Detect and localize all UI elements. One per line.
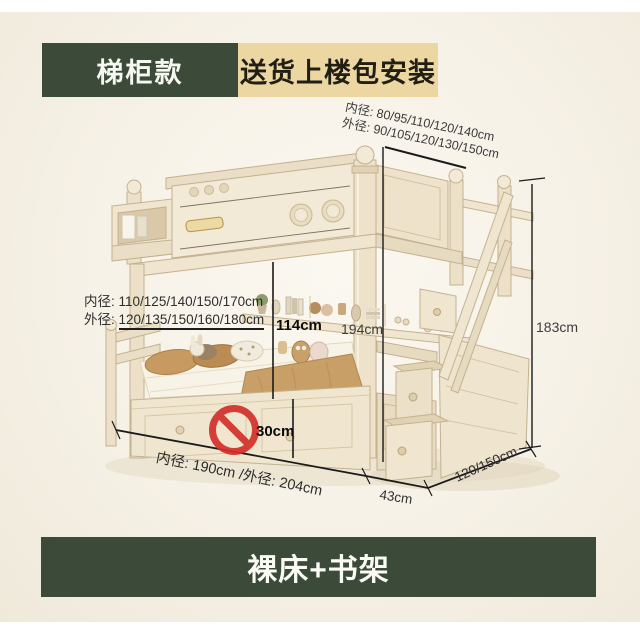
inner-size-label: 内径:: [84, 294, 115, 309]
lower-bed-inner-size: 内径: 110/125/140/150/170cm: [84, 293, 264, 311]
mid-height-dim: 194cm: [341, 320, 383, 338]
total-height-dim: 183cm: [536, 318, 578, 336]
variant-tag: 裸床+书架: [41, 537, 596, 597]
model-tag: 梯柜款: [42, 43, 238, 97]
promo-tag: 送货上楼包安装: [238, 43, 438, 97]
book-caddy: [112, 180, 172, 264]
underbed-height-dim: 30cm: [256, 422, 294, 442]
guardrail-right: [449, 169, 533, 285]
outer-size-label: 外径:: [84, 312, 115, 327]
lower-bed-outer-size: 外径: 120/135/150/160/180cm: [84, 311, 264, 329]
lower-bed-size-annotation: 内径: 110/125/140/150/170cm 外径: 120/135/15…: [84, 293, 264, 328]
product-spec-card: 梯柜款 送货上楼包安装 内径: 80/95/110/120/140cm 外径: …: [0, 0, 640, 640]
upper-clearance-dim: 114cm: [276, 316, 322, 336]
outer-size-value: 120/135/150/160/180cm: [119, 312, 265, 330]
inner-size-value: 110/125/140/150/170cm: [119, 294, 264, 309]
